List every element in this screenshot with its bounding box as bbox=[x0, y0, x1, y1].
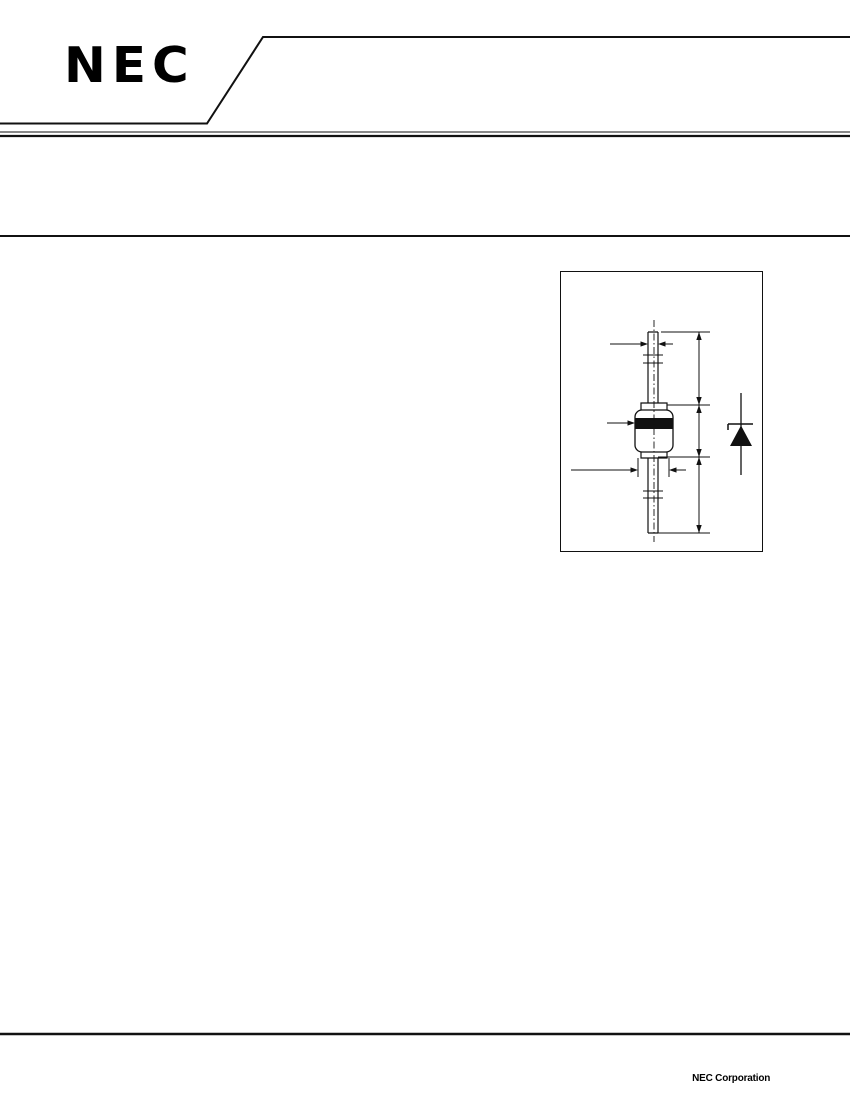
nec-logo: NEC bbox=[64, 41, 195, 90]
package-figure-box bbox=[560, 271, 763, 552]
datasheet-page: NEC bbox=[0, 0, 850, 1100]
footer-company-text: NEC Corporation bbox=[692, 1072, 770, 1085]
diode-symbol-icon bbox=[728, 393, 753, 475]
package-outline-drawing bbox=[561, 272, 762, 551]
diode-package-outline-drawing bbox=[571, 320, 710, 542]
